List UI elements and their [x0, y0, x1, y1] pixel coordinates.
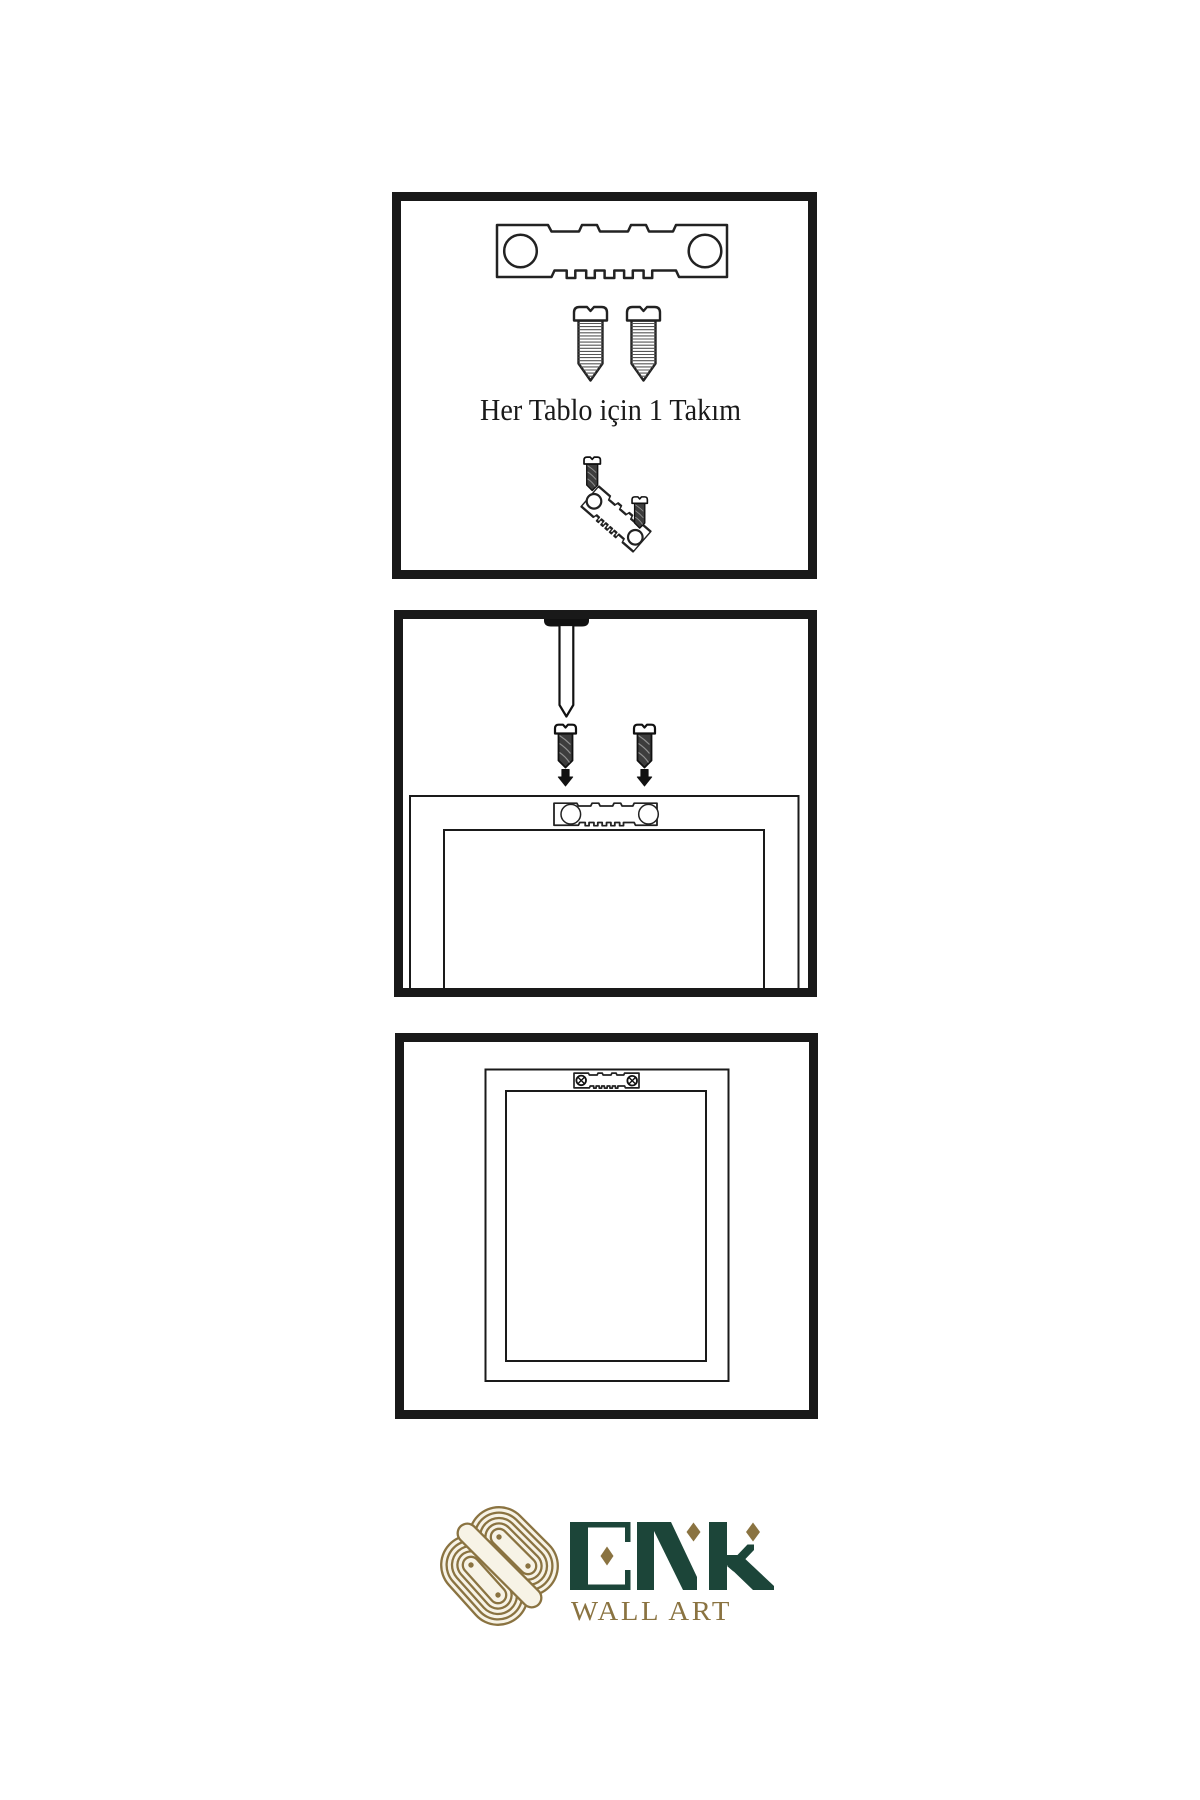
svg-text:WALL ART: WALL ART: [571, 1596, 732, 1626]
svg-text:Her Tablo için 1 Takım: Her Tablo için 1 Takım: [480, 392, 741, 427]
